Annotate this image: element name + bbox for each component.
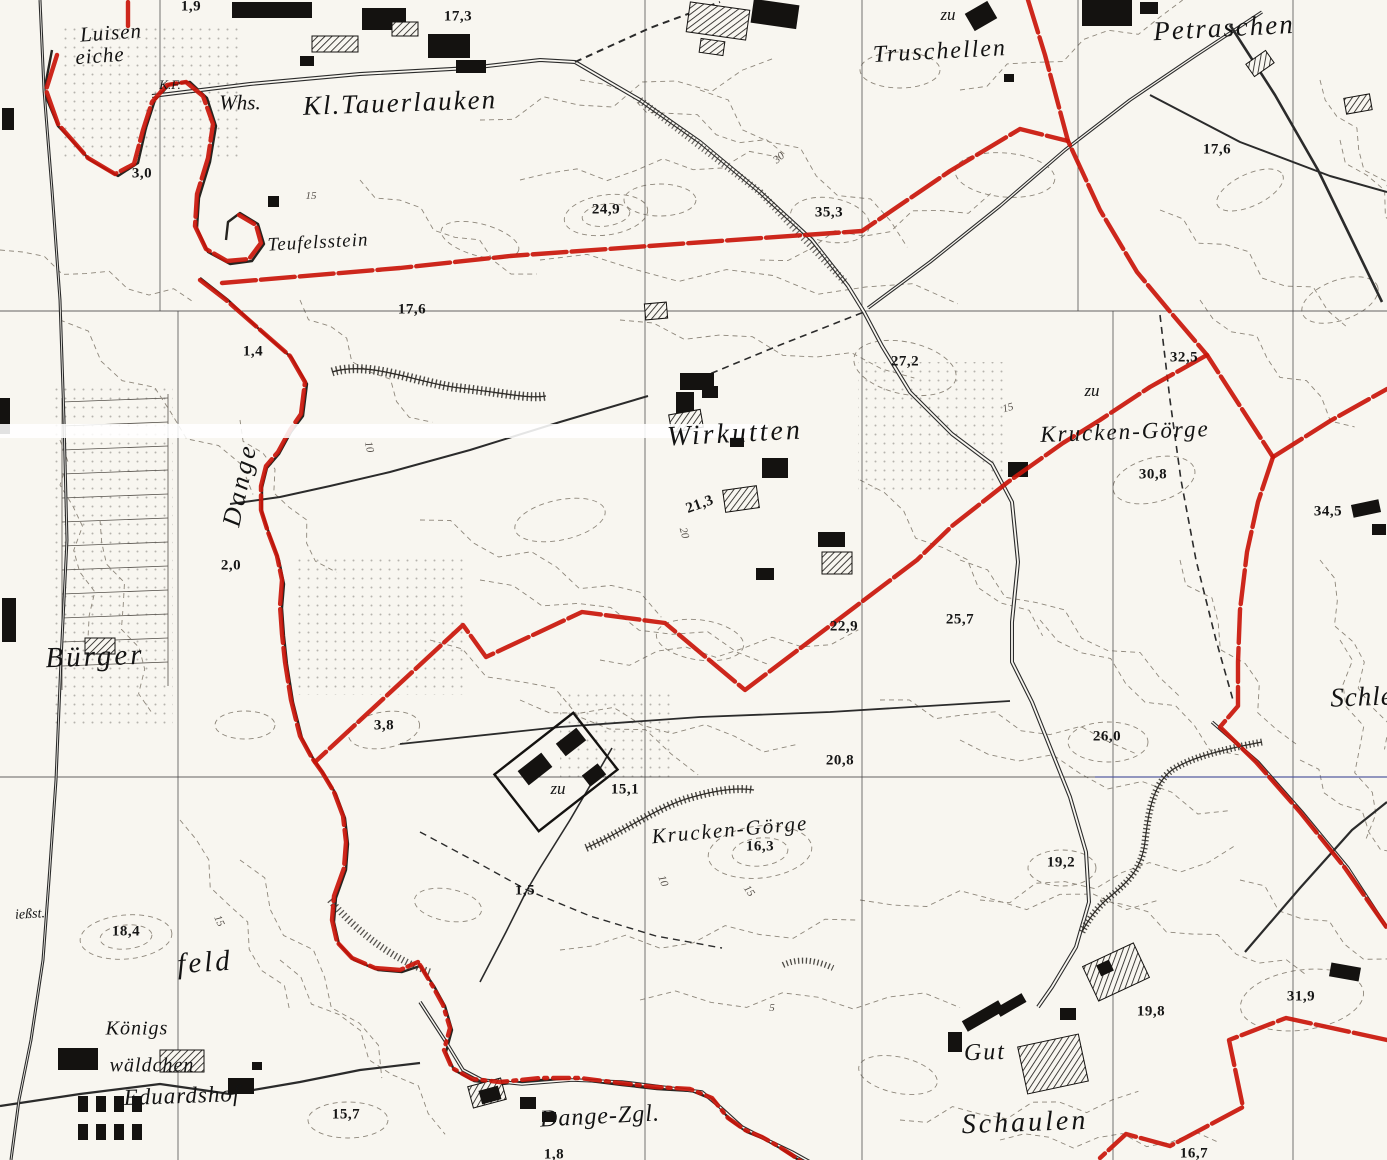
place-label: Schaulen bbox=[961, 1105, 1089, 1141]
spot-height-label: 19,2 bbox=[1047, 855, 1075, 872]
place-label: zu bbox=[940, 5, 955, 25]
place-label: feld bbox=[176, 945, 234, 982]
spot-height-label: 17,6 bbox=[1203, 142, 1231, 159]
spot-height-label: 17,3 bbox=[444, 9, 472, 26]
place-label: Schle bbox=[1330, 680, 1387, 713]
place-label: Eduardshof bbox=[123, 1081, 240, 1111]
gully-hachures bbox=[330, 100, 1262, 972]
map-viewport[interactable]: LuiseneicheK.F.Whs.Kl.TauerlaukenTeufels… bbox=[0, 0, 1387, 1160]
boundary-overlay bbox=[46, 0, 1387, 1160]
vegetation-dots bbox=[55, 28, 1008, 780]
map-canvas bbox=[0, 0, 1387, 1160]
place-label: Königs bbox=[106, 1018, 169, 1041]
spot-height-label: 16,7 bbox=[1180, 1146, 1208, 1160]
spot-height-label: 24,9 bbox=[592, 202, 620, 219]
spot-height-label: 2,0 bbox=[221, 558, 241, 575]
spot-height-label: 31,9 bbox=[1287, 989, 1315, 1006]
spot-height-label: 1,4 bbox=[243, 344, 263, 361]
roads bbox=[0, 0, 1387, 1160]
spot-height-label: 26,0 bbox=[1093, 729, 1121, 746]
spot-height-label: 1,9 bbox=[181, 0, 201, 16]
spot-height-label: 35,3 bbox=[815, 205, 843, 222]
place-label: Whs. bbox=[219, 91, 260, 116]
spot-height-label: 25,7 bbox=[946, 612, 974, 629]
place-label: Gut bbox=[964, 1039, 1007, 1067]
spot-height-label: 30,8 bbox=[1139, 467, 1167, 484]
place-label: zu bbox=[550, 779, 565, 799]
place-label: eiche bbox=[75, 42, 126, 70]
spot-height-label: 32,5 bbox=[1170, 350, 1198, 367]
spot-height-label: 20,8 bbox=[826, 753, 854, 770]
spot-height-label: 18,4 bbox=[112, 924, 140, 941]
place-label: Bürger bbox=[45, 639, 145, 675]
spot-height-label: 17,6 bbox=[398, 302, 426, 319]
spot-height-label: 15,7 bbox=[332, 1107, 360, 1124]
spot-height-label: 3,8 bbox=[374, 718, 394, 735]
spot-height-label: 15,1 bbox=[611, 782, 639, 799]
spot-height-label: 22,9 bbox=[830, 619, 858, 636]
grid-lines bbox=[0, 0, 1387, 1160]
place-label: K.F. bbox=[159, 77, 180, 93]
contour-label: 5 bbox=[769, 1002, 775, 1014]
spot-height-label: 3,0 bbox=[132, 166, 152, 183]
scan-streak bbox=[0, 424, 768, 438]
spot-height-label: 34,5 bbox=[1314, 504, 1342, 521]
place-label: wäldchen bbox=[110, 1055, 195, 1078]
place-label: zu bbox=[1084, 381, 1099, 401]
contour-label: 15 bbox=[306, 190, 317, 202]
spot-height-label: 1,5 bbox=[515, 883, 535, 900]
spot-height-label: 27,2 bbox=[891, 354, 919, 371]
spot-height-label: 16,3 bbox=[746, 839, 774, 856]
place-label: ießst. bbox=[15, 906, 46, 924]
spot-height-label: 19,8 bbox=[1137, 1004, 1165, 1021]
spot-height-label: 1,8 bbox=[544, 1147, 564, 1160]
